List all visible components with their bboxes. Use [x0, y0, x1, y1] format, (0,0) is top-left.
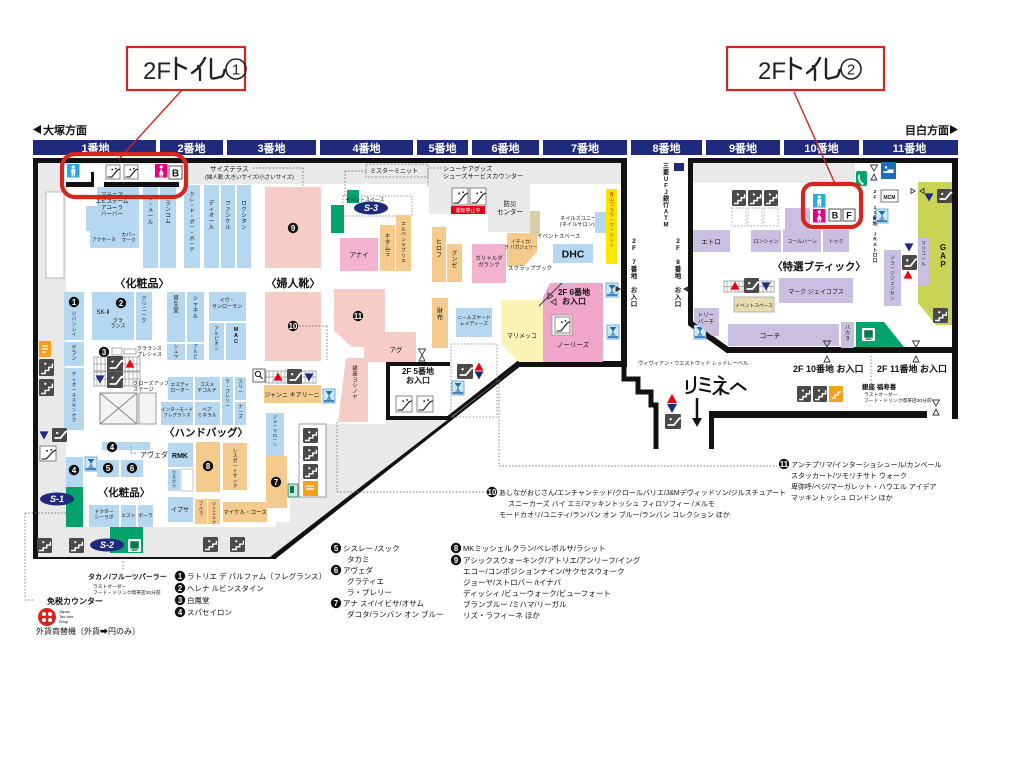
svg-text:イベントスペース: イベントスペース	[345, 198, 384, 204]
svg-text:2: 2	[119, 299, 124, 308]
svg-text:アナイ: アナイ	[349, 251, 368, 259]
svg-text:クラランスプレシャス: クラランスプレシャス	[137, 346, 162, 358]
svg-text:サイズテラス: サイズテラス	[210, 164, 249, 173]
svg-text:2F: 2F	[758, 58, 786, 85]
svg-text:運転停止中: 運転停止中	[455, 207, 480, 214]
svg-text:アルビオン: アルビオン	[214, 326, 219, 351]
svg-text:6: 6	[130, 464, 135, 473]
svg-text:B: B	[172, 169, 179, 180]
svg-text:〈婦人靴〉: 〈婦人靴〉	[266, 276, 321, 290]
svg-text:2F 11番地 お入口: 2F 11番地 お入口	[877, 363, 947, 374]
svg-text:卑弥呼/ベジ/マーガレット・ハウエル アイデア: 卑弥呼/ベジ/マーガレット・ハウエル アイデア	[791, 482, 936, 491]
svg-text:S-3: S-3	[364, 203, 378, 213]
svg-text:ラトリエ デ パルファム〔フレグランス〕: ラトリエ デ パルファム〔フレグランス〕	[187, 571, 326, 581]
svg-text:ラ・メール: ラ・メール	[148, 195, 154, 226]
svg-text:キタムラ: キタムラ	[385, 234, 391, 258]
svg-text:ラストオーダー: ラストオーダー	[93, 583, 127, 590]
svg-text:マイケル・コース: マイケル・コース	[223, 509, 267, 516]
svg-text:アンテプリマ/インターショシュール/カンベール: アンテプリマ/インターショシュール/カンベール	[791, 460, 941, 469]
svg-text:免税カウンター: 免税カウンター	[47, 596, 103, 606]
svg-text:ロクシタン: ロクシタン	[241, 201, 247, 231]
svg-text:SK-Ⅱ: SK-Ⅱ	[97, 310, 110, 316]
svg-text:モードカオリ/ユニティ/ランバン オン ブルー/ランバン コ: モードカオリ/ユニティ/ランバン オン ブルー/ランバン コレクション ほか	[499, 510, 730, 519]
svg-text:イプサ: イプサ	[171, 507, 189, 514]
svg-text:MAC: MAC	[234, 327, 239, 345]
svg-text:銀座ヨシノヤ: 銀座ヨシノヤ	[352, 364, 357, 401]
svg-text:2: 2	[847, 62, 855, 79]
svg-text:スタッカート/ツモリチサト ウォーク: スタッカート/ツモリチサト ウォーク	[791, 471, 907, 480]
svg-text:ジバンシイ: ジバンシイ	[72, 312, 77, 338]
svg-text:コーチ: コーチ	[760, 332, 781, 340]
svg-text:ディッシィ /ビューウォーク/ビューフォート: ディッシィ /ビューウォーク/ビューフォート	[463, 588, 611, 598]
svg-text:アシックスウォーキング/アトリエ/アンリーフ/イング: アシックスウォーキング/アトリエ/アンリーフ/イング	[463, 555, 641, 565]
svg-text:8: 8	[454, 544, 459, 553]
svg-text:ヒロフ: ヒロフ	[436, 239, 442, 259]
svg-text:〈ハンドバッグ〉: 〈ハンドバッグ〉	[164, 426, 248, 439]
svg-text:ヘレナ ルビンスタイン: ヘレナ ルビンスタイン	[187, 584, 264, 593]
svg-text:1: 1	[178, 572, 183, 581]
svg-text:9: 9	[291, 224, 296, 233]
svg-text:ニールズヤードレメディーズ: ニールズヤードレメディーズ	[457, 314, 491, 327]
svg-text:2F: 2F	[143, 58, 171, 85]
svg-text:アルビ: アルビ	[193, 344, 198, 359]
svg-text:2F 5番地お入口: 2F 5番地お入口	[402, 366, 434, 385]
svg-text:〈化粧品〉: 〈化粧品〉	[98, 486, 151, 499]
svg-text:エルベシャプリエ: エルベシャプリエ	[401, 221, 406, 264]
svg-text:リズ・ラフィーネ ほか: リズ・ラフィーネ ほか	[463, 610, 540, 620]
svg-text:フルラ: フルラ	[199, 501, 204, 517]
svg-text:4: 4	[178, 608, 183, 617]
svg-text:ガリャルダガランテ: ガリャルダガランテ	[475, 254, 503, 269]
svg-text:〈特選ブティック〉: 〈特選ブティック〉	[772, 260, 866, 273]
svg-text:ミスターミニット: ミスターミニット	[370, 167, 418, 175]
svg-text:2F 10番地 お入口: 2F 10番地 お入口	[793, 363, 864, 374]
svg-text:財布: 財布	[437, 307, 443, 322]
svg-text:11: 11	[780, 460, 789, 469]
svg-text:GAP: GAP	[940, 243, 946, 269]
svg-text:DHC: DHC	[562, 249, 585, 261]
svg-text:カバーマーク: カバーマーク	[121, 232, 136, 244]
svg-text:(婦人靴:大きいサイズ/小さいサイズ): (婦人靴:大きいサイズ/小さいサイズ)	[205, 173, 294, 181]
svg-text:エトロ: エトロ	[701, 239, 721, 246]
svg-text:ジャンニ キアリーニ: ジャンニ キアリーニ	[264, 392, 319, 399]
svg-text:ジョーヤ/ストロバー /tイナバ: ジョーヤ/ストロバー /tイナバ	[463, 578, 562, 587]
svg-text:11: 11	[354, 312, 363, 321]
svg-text:レスポートサック: レスポートサック	[233, 448, 238, 490]
svg-text:〈化粧品〉: 〈化粧品〉	[115, 276, 170, 290]
svg-text:ダコタ/ランバン オン ブルー: ダコタ/ランバン オン ブルー	[347, 609, 444, 619]
svg-text:1: 1	[232, 62, 240, 79]
svg-text:2番地: 2番地	[177, 141, 205, 155]
svg-text:コスメデコルテ: コスメデコルテ	[197, 382, 216, 394]
svg-text:3: 3	[102, 348, 107, 357]
svg-text:マーク ジェイコブス: マーク ジェイコブス	[788, 288, 844, 296]
svg-text:スニーカーズ バイ エミ/マッキントッシュ フィロソフィー: スニーカーズ バイ エミ/マッキントッシュ フィロソフィー /メルモ	[508, 499, 715, 508]
svg-text:スパセイロン: スパセイロン	[187, 608, 232, 617]
svg-text:インターモードフレグランス: インターモードフレグランス	[161, 406, 193, 419]
svg-text:バカラ: バカラ	[845, 325, 850, 342]
svg-text:ナーズ: ナーズ	[238, 404, 243, 420]
svg-text:カネボウ: カネボウ	[172, 470, 176, 489]
svg-text:9番地: 9番地	[729, 141, 757, 155]
svg-text:F: F	[846, 211, 852, 221]
svg-text:ヴィヴィアン・ウエストウッド レッドレーベル: ヴィヴィアン・ウエストウッド レッドレーベル	[638, 359, 748, 367]
svg-text:10: 10	[289, 322, 298, 331]
svg-text:トゥミ: トゥミ	[828, 239, 843, 245]
svg-text:7: 7	[334, 599, 338, 608]
svg-text:マリメッコ: マリメッコ	[507, 333, 537, 340]
svg-text:ディオール: ディオール	[209, 199, 215, 231]
svg-text:ファンケル: ファンケル	[225, 200, 231, 231]
svg-text:マリコール: マリコール	[921, 241, 926, 266]
svg-text:大塚方面: 大塚方面	[43, 123, 87, 137]
svg-text:シャネル: シャネル	[193, 296, 199, 320]
svg-text:銀座 福寿喜: 銀座 福寿喜	[862, 382, 897, 391]
svg-text:フード・ドリンク喫茶店30分前: フード・ドリンク喫茶店30分前	[864, 397, 932, 404]
svg-text:S-1: S-1	[50, 494, 64, 504]
svg-text:白鳳堂: 白鳳堂	[187, 595, 210, 605]
svg-text:アクセーヌ: アクセーヌ	[92, 237, 116, 243]
svg-text:RMK: RMK	[172, 453, 188, 460]
svg-text:ジョーマローン: ジョーマローン	[273, 414, 277, 447]
svg-text:1: 1	[72, 298, 77, 307]
svg-text:ランコム: ランコム	[165, 200, 171, 225]
svg-text:ラ・プレリー: ラ・プレリー	[225, 379, 230, 409]
svg-text:5: 5	[334, 544, 339, 553]
svg-text:3: 3	[178, 596, 183, 605]
svg-text:ジョージジェンセン: ジョージジェンセン	[890, 255, 895, 301]
svg-text:S-2: S-2	[100, 540, 114, 550]
svg-text:2: 2	[178, 584, 183, 593]
svg-text:外貨両替機〔外貨➡円のみ〕: 外貨両替機〔外貨➡円のみ〕	[36, 626, 140, 636]
svg-text:ジュエルナ: ジュエルナ	[212, 501, 216, 526]
svg-text:あしながおじさん/エンチャンテッド/クロールバリエ/J&Mデ: あしながおじさん/エンチャンテッド/クロールバリエ/J&Mデヴィッドソン/ジルス…	[499, 488, 786, 497]
svg-text:アヴェダ: アヴェダ	[343, 565, 373, 575]
svg-text:青山フラワーマーケット: 青山フラワーマーケット	[609, 191, 614, 248]
svg-text:スクラップブック: スクラップブック	[508, 264, 552, 272]
svg-text:3番地: 3番地	[257, 141, 285, 155]
svg-text:イベントスペース: イベントスペース	[735, 303, 773, 309]
svg-text:グラティエ: グラティエ	[347, 576, 384, 586]
svg-text:クリニーク: クリニーク	[141, 296, 146, 324]
svg-text:スリー: スリー	[238, 379, 243, 394]
svg-text:6: 6	[334, 566, 339, 575]
svg-text:7番地: 7番地	[571, 141, 599, 155]
svg-text:ポーラ: ポーラ	[138, 512, 153, 519]
svg-text:イベントスペース: イベントスペース	[537, 233, 580, 240]
svg-text:7: 7	[274, 478, 278, 487]
svg-text:ラ・プレリー: ラ・プレリー	[347, 588, 392, 597]
svg-text:5: 5	[106, 464, 111, 473]
svg-text:資生堂: 資生堂	[173, 294, 179, 314]
svg-text:4: 4	[110, 443, 115, 452]
svg-text:マッキントッシュ ロンドン ほか: マッキントッシュ ロンドン ほか	[791, 494, 893, 502]
svg-text:4番地: 4番地	[352, 141, 380, 155]
svg-text:ノーリーズ: ノーリーズ	[557, 340, 590, 349]
svg-text:10: 10	[488, 488, 497, 497]
svg-text:タカノ/フルーツパーラー: タカノ/フルーツパーラー	[88, 572, 167, 581]
svg-text:シュウ: シュウ	[174, 344, 179, 359]
svg-text:クレ・ド・ポー・ボーテ: クレ・ド・ポー・ボーテ	[189, 192, 194, 253]
svg-text:ドクターシーラボ: ドクターシーラボ	[94, 508, 113, 521]
svg-text:コールハーン: コールハーン	[787, 239, 817, 245]
svg-text:MKミッシェルクラン/ベレポルサ/ラシット: MKミッシェルクラン/ベレポルサ/ラシット	[463, 544, 606, 553]
svg-text:11番地: 11番地	[893, 141, 927, 155]
svg-text:グンゼ: グンゼ	[452, 249, 458, 269]
svg-text:B: B	[832, 211, 839, 221]
svg-text:MCM: MCM	[884, 195, 896, 201]
svg-text:8: 8	[206, 462, 211, 471]
svg-text:2F 6番地お入口: 2F 6番地お入口	[558, 287, 590, 306]
svg-text:エスト: エスト	[121, 513, 136, 519]
svg-text:エスティローダー: エスティローダー	[170, 382, 189, 394]
svg-text:8番地: 8番地	[652, 141, 680, 155]
svg-text:Shop: Shop	[59, 619, 69, 624]
svg-text:タカミ: タカミ	[347, 555, 370, 564]
svg-text:ラストオーダー: ラストオーダー	[864, 391, 898, 398]
svg-text:エコー/コンポジションナイン/サクセスウォーク: エコー/コンポジションナイン/サクセスウォーク	[463, 567, 625, 576]
svg-text:ゲラン: ゲラン	[71, 344, 76, 362]
svg-text:5番地: 5番地	[428, 141, 456, 155]
svg-text:トリーバーチ: トリーバーチ	[698, 313, 715, 326]
svg-text:アグ: アグ	[390, 345, 403, 354]
svg-text:9: 9	[454, 556, 459, 565]
svg-text:ディオールスキンケア: ディオールスキンケア	[72, 371, 77, 424]
svg-text:6番地: 6番地	[491, 141, 519, 155]
svg-text:フード・ドリンク喫茶店30分前: フード・ドリンク喫茶店30分前	[93, 589, 161, 596]
svg-text:ロンシャン: ロンシャン	[753, 239, 778, 245]
svg-text:アナ スイ/イビサ/オサム: アナ スイ/イビサ/オサム	[343, 599, 424, 608]
svg-text:4: 4	[72, 466, 77, 475]
svg-text:目白方面: 目白方面	[905, 123, 949, 137]
svg-text:シスレー /スック: シスレー /スック	[343, 544, 400, 553]
svg-text:ブランブルー /ミハマ/リーガル: ブランブルー /ミハマ/リーガル	[463, 599, 567, 609]
svg-text:アヴェダ: アヴェダ	[140, 450, 168, 459]
